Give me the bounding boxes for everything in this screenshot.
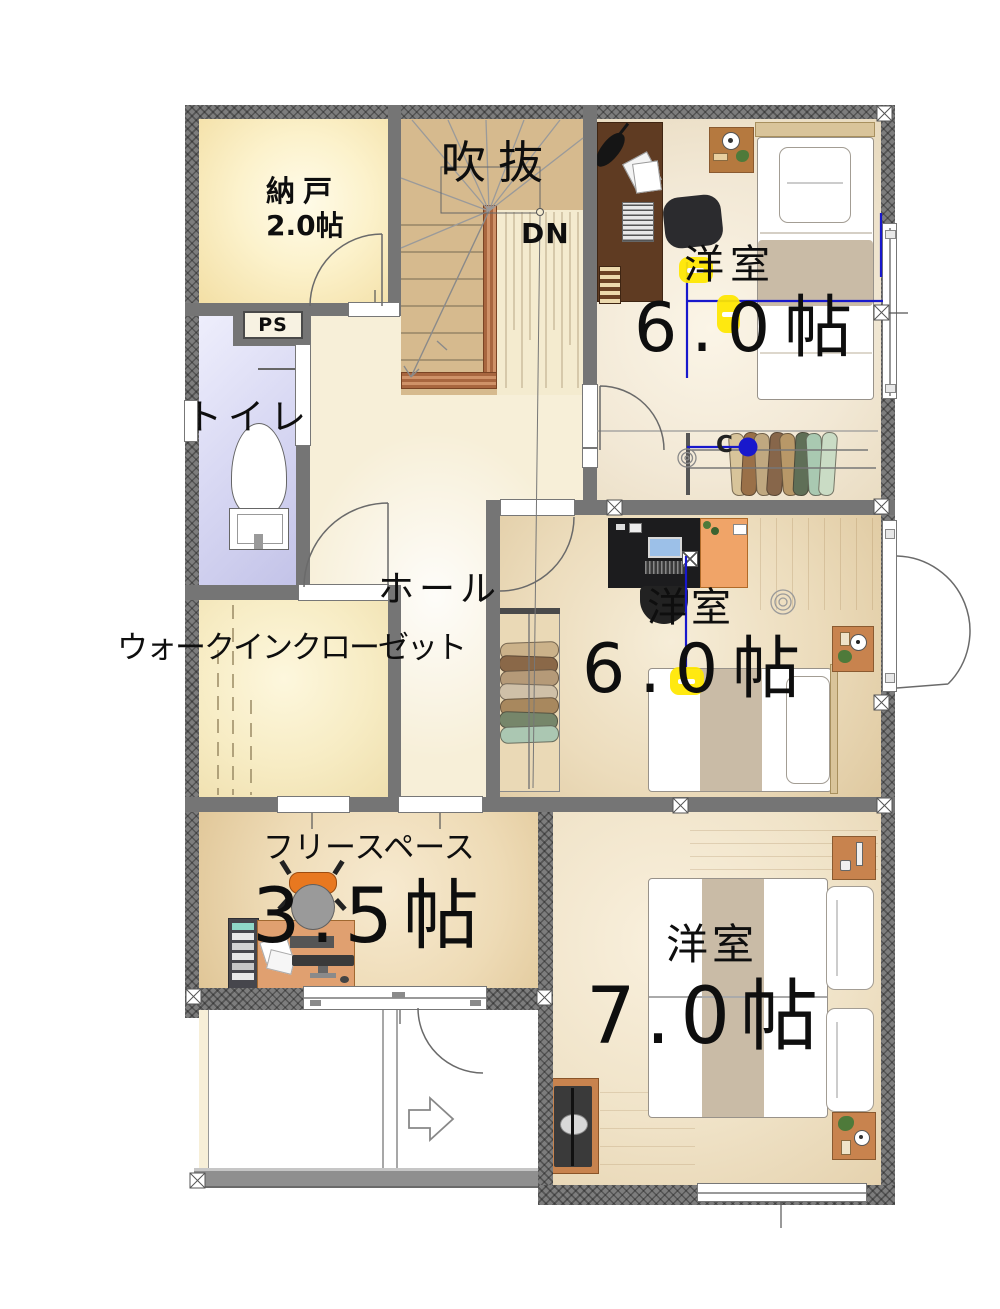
room-label-bedroom-top: 洋室 bbox=[684, 245, 776, 285]
bedroom-mid-door-arc bbox=[500, 517, 574, 591]
room-label-wic: ウォークインクローゼット bbox=[117, 633, 465, 664]
room-size-bedroom-bottom: 7.0帖 bbox=[586, 978, 828, 1056]
bedroom-top-door-arc bbox=[600, 386, 664, 450]
room-label-bedroom-bottom: 洋室 bbox=[666, 924, 758, 966]
nando-door-arc bbox=[310, 234, 382, 306]
floor-plan: PS bbox=[0, 0, 1000, 1309]
room-label-void: 吹抜 bbox=[441, 140, 555, 185]
stairs-down-label: DN bbox=[521, 220, 570, 248]
wic-door-arc bbox=[304, 503, 388, 587]
room-size-nando: 2.0帖 bbox=[266, 212, 344, 240]
closet-hanger-mark: C bbox=[716, 434, 733, 457]
dn-marker-circle bbox=[537, 209, 544, 216]
room-size-free-space: 3.5帖 bbox=[252, 878, 489, 954]
room-size-bedroom-mid: 6.0帖 bbox=[582, 636, 814, 704]
blue-node-dot bbox=[739, 438, 758, 457]
room-label-bedroom-mid: 洋室 bbox=[647, 588, 735, 628]
room-label-free-space: フリースペース bbox=[263, 833, 475, 864]
room-size-bedroom-top: 6.0帖 bbox=[634, 295, 866, 363]
stair-treads bbox=[401, 225, 483, 360]
balcony-exit-arrow-icon bbox=[409, 1098, 453, 1140]
balcony-door-arc bbox=[418, 1008, 483, 1073]
balcony-divider bbox=[383, 1010, 397, 1168]
section-line bbox=[533, 216, 540, 788]
room-label-toilet: トイレ bbox=[186, 400, 312, 436]
stair-direction-line bbox=[404, 211, 489, 377]
ceiling-light-icon bbox=[771, 590, 795, 614]
room-label-nando: 納戸 bbox=[266, 177, 340, 206]
room-label-hall: ホール bbox=[378, 572, 501, 608]
bedroom-mid-ext-door-arc bbox=[897, 556, 970, 688]
